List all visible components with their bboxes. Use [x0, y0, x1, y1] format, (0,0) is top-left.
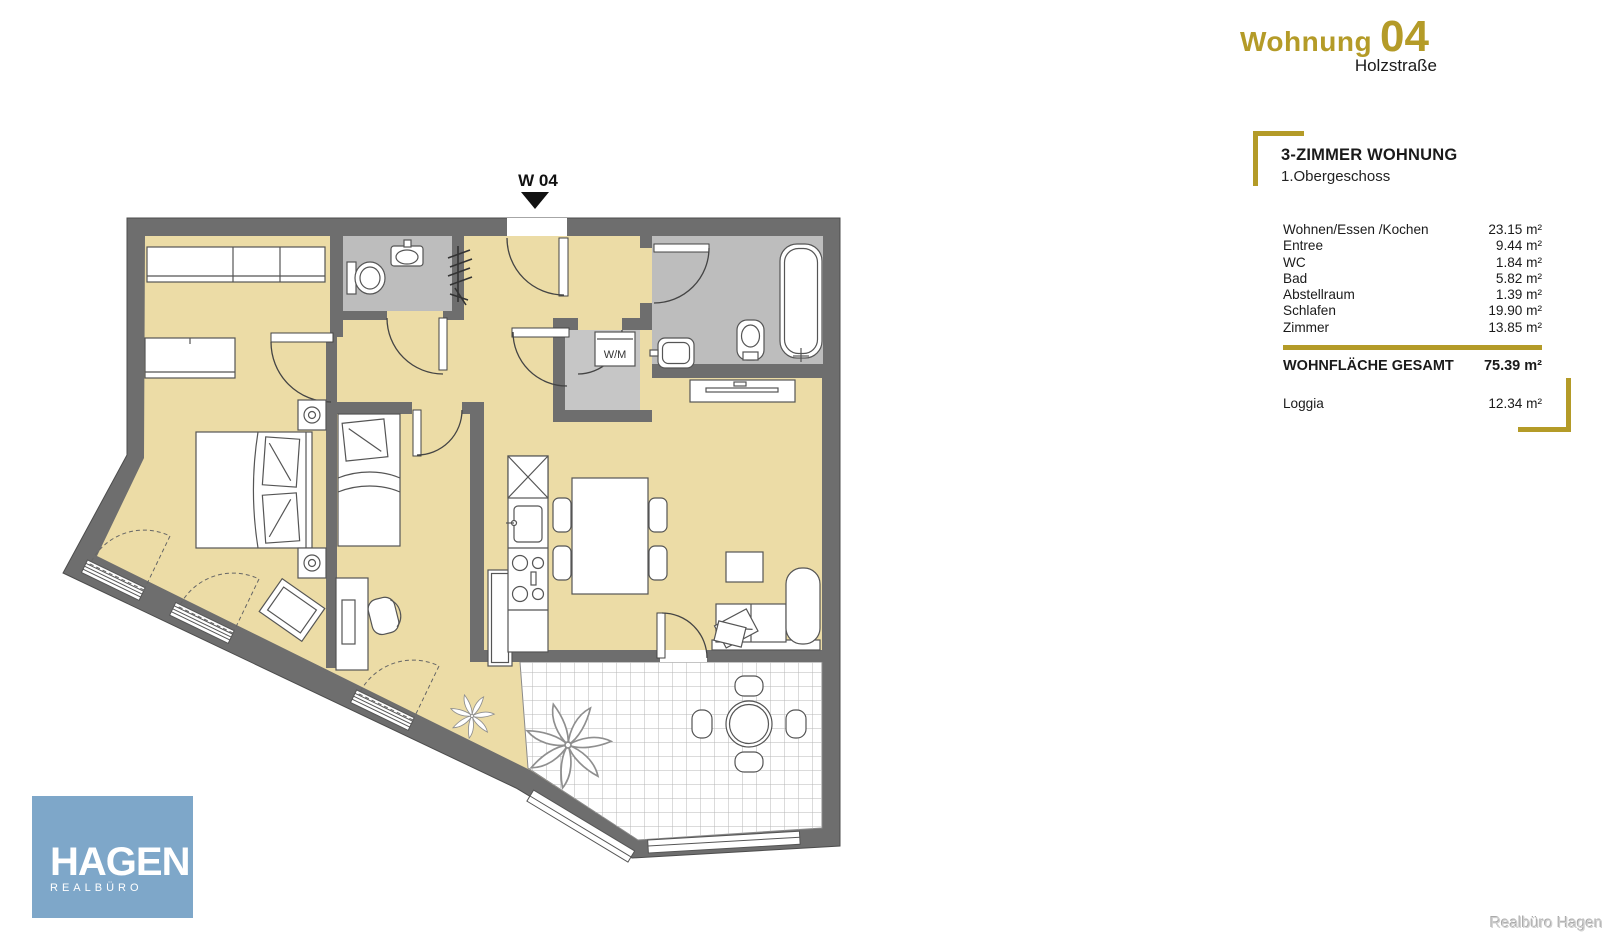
table-row: Entree9.44 m² — [1283, 238, 1542, 254]
gold-divider-rule — [1283, 345, 1542, 350]
nightstand-top — [298, 400, 326, 430]
table-row: Schlafen19.90 m² — [1283, 303, 1542, 319]
title-word: Wohnung — [1240, 26, 1372, 57]
total-row: WOHNFLÄCHE GESAMT75.39 m² — [1283, 357, 1542, 375]
gold-bracket-top-horizontal — [1253, 131, 1304, 136]
area-table: Wohnen/Essen /Kochen23.15 m² Entree9.44 … — [1283, 222, 1542, 412]
gold-bracket-bottom-vertical — [1566, 378, 1571, 432]
unit-marker: W 04 — [518, 171, 558, 209]
desk — [336, 578, 368, 670]
apartment-floor: 1.Obergeschoss — [1281, 168, 1457, 185]
table-row: Bad5.82 m² — [1283, 271, 1542, 287]
room-label: WC — [1283, 255, 1306, 271]
room-area: 1.84 m² — [1496, 255, 1542, 271]
room-area: 5.82 m² — [1496, 271, 1542, 287]
room-area: 23.15 m² — [1488, 222, 1542, 238]
room-label: Zimmer — [1283, 320, 1329, 336]
total-area: 75.39 m² — [1484, 357, 1542, 375]
total-label: WOHNFLÄCHE GESAMT — [1283, 357, 1454, 375]
gold-bracket-bottom-horizontal — [1518, 427, 1571, 432]
wardrobe-top — [147, 247, 325, 282]
logo-sub-text: REALBÜRO — [50, 882, 193, 894]
double-bed — [196, 432, 312, 548]
table-row: Wohnen/Essen /Kochen23.15 m² — [1283, 222, 1542, 238]
room-area: 9.44 m² — [1496, 238, 1542, 254]
unit-label: W 04 — [518, 171, 558, 190]
room-label: Abstellraum — [1283, 287, 1355, 303]
apartment-type: 3-ZIMMER WOHNUNG — [1281, 146, 1457, 165]
logo-main-text: HAGEN — [50, 845, 193, 879]
title-number: 04 — [1380, 12, 1429, 61]
wc-toilet — [347, 262, 385, 294]
room-label: Bad — [1283, 271, 1307, 287]
bathtub — [780, 244, 822, 362]
room-label: Wohnen/Essen /Kochen — [1283, 222, 1429, 238]
apartment-heading: 3-ZIMMER WOHNUNG 1.Obergeschoss — [1281, 146, 1457, 185]
loggia-label: Loggia — [1283, 396, 1324, 412]
table-row: Abstellraum1.39 m² — [1283, 287, 1542, 303]
washer-label: W/M — [604, 349, 627, 361]
room-area: 19.90 m² — [1488, 303, 1542, 319]
loggia-row: Loggia12.34 m² — [1283, 396, 1542, 412]
coffee-table — [726, 552, 763, 582]
loggia-area: 12.34 m² — [1488, 396, 1542, 412]
credit-watermark: Realbüro Hagen — [1490, 915, 1603, 933]
kitchen-line — [506, 456, 548, 652]
nightstand-bottom — [298, 548, 326, 578]
single-bed — [338, 414, 400, 546]
fridge — [508, 456, 548, 498]
hagen-logo: HAGEN REALBÜRO — [32, 796, 193, 918]
unit-marker-arrow-icon — [521, 192, 549, 209]
table-row: WC1.84 m² — [1283, 255, 1542, 271]
room-label: Entree — [1283, 238, 1323, 254]
page-title: Wohnung04 — [1240, 12, 1429, 62]
gold-bracket-top-vertical — [1253, 131, 1258, 186]
sideboard — [690, 380, 795, 402]
wardrobe-left — [145, 338, 235, 378]
room-area: 13.85 m² — [1488, 320, 1542, 336]
bath-toilet — [737, 320, 764, 360]
table-row: Zimmer13.85 m² — [1283, 320, 1542, 336]
room-label: Schlafen — [1283, 303, 1336, 319]
washing-machine: W/M — [595, 332, 635, 366]
street-subtitle: Holzstraße — [1355, 56, 1437, 76]
room-area: 1.39 m² — [1496, 287, 1542, 303]
